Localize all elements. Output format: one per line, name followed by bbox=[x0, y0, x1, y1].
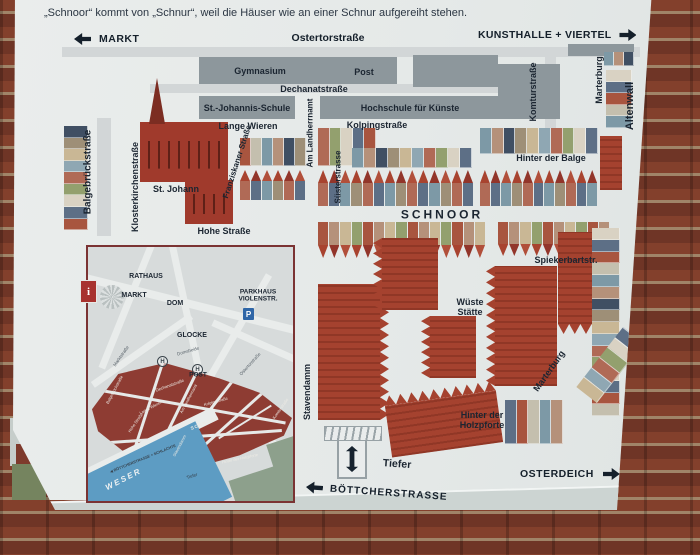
inset-labels-layer: RATHAUSMARKTDOMPARKHAUS VIOLENSTR.GLOCKE… bbox=[88, 247, 293, 501]
bridge-box bbox=[337, 441, 367, 479]
street-label: Klosterkirchenstraße bbox=[130, 142, 140, 232]
inset-label: POST bbox=[189, 371, 207, 378]
inset-label: Komturstraße bbox=[272, 398, 290, 420]
inset-label: Domsheide bbox=[176, 345, 199, 356]
inset-label: SCHNOOR bbox=[190, 415, 220, 431]
direction-osterdeich-label: OSTERDEICH bbox=[520, 468, 594, 480]
street-label: Balgebrückstraße bbox=[82, 130, 93, 214]
street-label: Dechanatstraße bbox=[280, 84, 348, 94]
arrow-left-icon bbox=[306, 481, 324, 494]
inset-label: ◀ BÖTTCHERSTRASSE + SCHLACHTE bbox=[109, 444, 176, 474]
street-label: Hinter der Holzpforte bbox=[460, 410, 505, 430]
inset-label: Kolpingstraße bbox=[204, 396, 229, 407]
street-label: Altenwall bbox=[624, 82, 636, 130]
inset-label: Marktstraße bbox=[112, 345, 130, 368]
street-label: Hochschule für Künste bbox=[361, 103, 460, 113]
street-label: Komturstraße bbox=[528, 62, 538, 121]
street-label: Spiekerbartstr. bbox=[534, 255, 597, 265]
street-label: Kolpingstraße bbox=[347, 120, 408, 130]
street-label: Gymnasium bbox=[234, 66, 286, 76]
street-label: Marterburg bbox=[531, 349, 567, 394]
inset-label: Am Landherrnamt bbox=[180, 384, 199, 414]
street-label: Franziskaner Straße bbox=[222, 124, 254, 200]
inset-label: GLOCKE bbox=[177, 332, 207, 340]
tourist-info-icon: i bbox=[80, 280, 97, 303]
arrow-right-icon bbox=[603, 468, 620, 480]
inset-label: Hohe Straße bbox=[128, 412, 145, 433]
street-label: Tiefer bbox=[382, 458, 411, 472]
schnoor-map-sign: der Weser. Das Schnoorviertel „Schnoor“ … bbox=[0, 0, 700, 500]
inset-label: Balgebrückstraße bbox=[106, 375, 125, 405]
tiefer-bridge-icon bbox=[324, 426, 380, 479]
inset-label: RATHAUS bbox=[129, 273, 163, 281]
street-label: Wüste Stätte bbox=[457, 297, 484, 317]
inset-label: PARKHAUS VIOLENSTR. bbox=[238, 289, 277, 304]
direction-osterdeich: OSTERDEICH bbox=[520, 468, 620, 480]
inset-label: Dechanatstraße bbox=[155, 379, 185, 394]
inset-label: DOM bbox=[167, 300, 183, 308]
bridge-hatch-bar bbox=[324, 426, 382, 441]
street-label: Hohe Straße bbox=[197, 226, 250, 236]
inset-label: Ostertorstraße bbox=[238, 352, 261, 377]
street-label: Stavendamm bbox=[302, 364, 312, 420]
street-label: Hinter der Balge bbox=[516, 153, 586, 163]
street-label: Post bbox=[354, 67, 374, 77]
info-glyph: i bbox=[87, 286, 90, 298]
inset-label: Tiefer bbox=[186, 472, 198, 480]
street-label: Süsterstrasse bbox=[335, 151, 344, 204]
inset-label: Marterburg bbox=[294, 415, 295, 434]
city-overview-inset-map: H H P RATHAUSMARKTDOMPARKHAUS VIOLENSTR.… bbox=[86, 245, 295, 503]
street-label: St.-Johannis-Schule bbox=[204, 103, 291, 113]
street-label: Marterburg bbox=[594, 56, 604, 104]
street-label: Am Landherrnamt bbox=[307, 99, 316, 168]
street-label: SCHNOOR bbox=[401, 208, 483, 221]
two-way-arrow-icon bbox=[346, 446, 358, 472]
inset-label: Hinter der Holzpforte bbox=[221, 453, 258, 465]
street-label: St. Johann bbox=[153, 184, 199, 194]
inset-label: MARKT bbox=[121, 292, 146, 300]
